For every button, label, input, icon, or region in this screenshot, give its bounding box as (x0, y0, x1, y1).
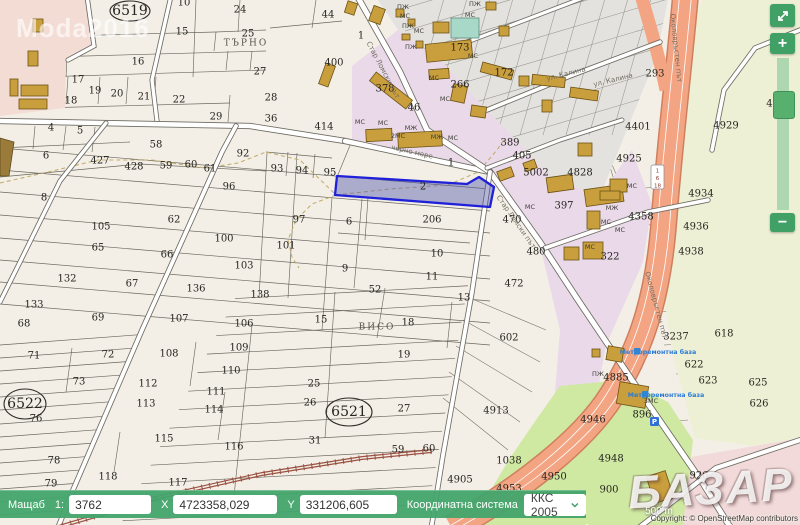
parcel-label: 61 (204, 164, 217, 175)
parcel-label: 100 (214, 234, 233, 245)
map-viewer: 1024152516271719202122182945441400283641… (0, 0, 800, 525)
parcel-label: 4950 (541, 472, 566, 483)
parcel-label: 59 (160, 161, 173, 172)
parcel-label: 108 (159, 349, 178, 360)
building (433, 22, 449, 33)
parcel-label: 626 (749, 399, 768, 410)
parcel-label: 4828 (567, 168, 592, 179)
building (600, 191, 620, 200)
parcel-label: 625 (748, 378, 767, 389)
parcel-label: 4401 (625, 122, 650, 133)
parcel-label: 52 (369, 285, 382, 296)
parcel-label: 65 (92, 243, 105, 254)
parcel-label: 622 (684, 360, 703, 371)
parcel-label: 18 (402, 318, 415, 329)
parcel-label: 109 (229, 343, 248, 354)
x-input[interactable] (173, 495, 277, 514)
building (499, 26, 509, 36)
parcel-label: 31 (309, 436, 322, 447)
parcel-label: 472 (504, 279, 523, 290)
parcel-label: 5002 (523, 168, 548, 179)
parcel-label: 17 (72, 75, 85, 86)
parcel-label: 414 (314, 122, 333, 133)
parcel-label: МС (615, 226, 626, 234)
building (28, 51, 38, 66)
parcel-label: 136 (186, 284, 205, 295)
parcel-label: 10 (431, 249, 444, 260)
parcel-label: 58 (150, 140, 163, 151)
parcel-label: 71 (28, 351, 41, 362)
parcel-label: 27 (254, 67, 267, 78)
parcel-label: 4929 (713, 121, 738, 132)
parcel-label: 6521 (331, 404, 367, 420)
crs-label: Координатна система (407, 499, 518, 511)
parcel-label: 6 (346, 217, 352, 228)
parcel-label: МС (468, 52, 479, 60)
parcel-label: 11 (426, 272, 439, 283)
poi-label: Метроремонтна база (628, 391, 705, 399)
parcel-label: 1038 (496, 456, 521, 467)
parcel-label: МС (400, 12, 411, 20)
scale-label: Мащаб (8, 499, 45, 511)
parcel-label: 66 (161, 250, 174, 261)
building (578, 143, 592, 156)
parcel-label: МС (355, 118, 366, 126)
parcel-label: 427 (90, 156, 109, 167)
parcel-label: 62 (168, 215, 181, 226)
parcel-label: 4358 (628, 212, 653, 223)
fullscreen-button[interactable] (770, 4, 795, 27)
parcel-label: 389 (500, 138, 519, 149)
parcel-label: 21 (138, 92, 151, 103)
parcel-label: ТЪРНО (224, 39, 268, 49)
parcel-label: 69 (92, 313, 105, 324)
parcel-label: 72 (102, 350, 115, 361)
parcel-label: 25 (308, 379, 321, 390)
parcel-label: 4925 (616, 154, 641, 165)
y-label: Y (287, 499, 294, 511)
parcel-label: 18 (65, 96, 78, 107)
parcel-label: 29 (210, 112, 223, 123)
parcel-label: ПЖ (397, 3, 409, 11)
parcel-label: 15 (176, 27, 189, 38)
parcel-label: 79 (45, 479, 58, 490)
building (519, 76, 529, 86)
status-bar: Мащаб 1: X Y Координатна система ККС 200… (0, 490, 586, 518)
parcel-label: 16 (132, 57, 145, 68)
parcel-label: 133 (24, 300, 43, 311)
parcel-label: 293 (645, 69, 664, 80)
route-shield-number: 6 (656, 176, 660, 182)
parcel-label: МС (465, 11, 476, 19)
parcel-label: МС (440, 95, 451, 103)
parcel-label: 322 (600, 252, 619, 263)
parcel-label: 103 (234, 261, 253, 272)
parcel-label: 115 (154, 434, 173, 445)
route-shield-number: 1 (656, 169, 660, 175)
parcel-label: 101 (276, 241, 295, 252)
parcel-label: 138 (250, 290, 269, 301)
parcel-label: 173 (450, 43, 469, 54)
parcel-label: ПЖ (402, 22, 414, 30)
parcel-label: 28 (265, 93, 278, 104)
parcel-label: 15 (315, 315, 328, 326)
parcel-label: МС (627, 182, 638, 190)
parcel-label: ПЖ (592, 370, 604, 378)
scale-input[interactable] (69, 495, 151, 514)
route-shield-number: 18 (654, 184, 661, 190)
parcel-label: 24 (234, 5, 247, 16)
building (10, 79, 18, 96)
parcel-label: МС (525, 203, 536, 211)
parcel-label: МС (378, 119, 389, 127)
parcel-label: 78 (48, 456, 61, 467)
parcel-label: 4948 (598, 454, 623, 465)
building (470, 105, 486, 118)
parcel-label: 428 (124, 162, 143, 173)
parcel-label: 6519 (112, 3, 148, 19)
parcel-label: 1 (358, 31, 364, 42)
parcel-label: 2МС (391, 132, 406, 140)
parcel-label: ПЖ (405, 43, 417, 51)
parcel-label: 4 (48, 123, 54, 134)
parcel-label: 105 (91, 222, 110, 233)
parcel-label: 19 (398, 350, 411, 361)
expand-arrows-icon (776, 9, 790, 23)
parcel-label: 4905 (447, 475, 472, 486)
parcel-label: МС (448, 134, 459, 142)
parcel-label: 113 (136, 399, 155, 410)
parcel-label: 26 (304, 398, 317, 409)
parcel-label: 114 (204, 405, 223, 416)
parcel-label: МС (414, 27, 425, 35)
parcel-label: 1 (448, 158, 454, 169)
parcel-label: 623 (698, 376, 717, 387)
poi-icon (634, 348, 641, 355)
zoom-slider-track[interactable] (777, 58, 789, 210)
parcel-label: МС (429, 74, 440, 82)
building (366, 128, 393, 141)
parcel-label: 8 (41, 193, 47, 204)
map-canvas[interactable]: 1024152516271719202122182945441400283641… (0, 0, 800, 525)
parcel-label: 132 (57, 274, 76, 285)
parcel-label: 95 (324, 168, 337, 179)
parcel-label: 107 (169, 314, 188, 325)
parcel-label: 60 (423, 444, 436, 455)
parcel-label: 68 (18, 319, 31, 330)
chevron-down-icon (571, 502, 579, 508)
parcel-label: МЖ (606, 204, 619, 212)
parcel-label: 4938 (678, 247, 703, 258)
parcel-label: МС (585, 243, 596, 251)
parcel-label: ПЖ (469, 0, 481, 8)
parcel-label: 206 (422, 215, 441, 226)
parcel-label: 60 (185, 160, 198, 171)
parcel-label: 110 (221, 366, 240, 377)
parcel-label: 112 (138, 379, 157, 390)
parcel-label: 4885 (603, 373, 628, 384)
building (402, 34, 410, 40)
parcel-label: 266 (450, 80, 469, 91)
parcel-label: 618 (714, 329, 733, 340)
parcel-label: 67 (126, 279, 139, 290)
parcel-label: 13 (458, 293, 471, 304)
parcel-label: 172 (494, 68, 513, 79)
scale-ratio-label: 1: (55, 499, 64, 511)
building (19, 99, 47, 109)
parcel-label: 46 (408, 103, 421, 114)
parcel-label: 397 (554, 201, 573, 212)
x-label: X (161, 499, 168, 511)
parcel-label: 94 (296, 166, 309, 177)
building (486, 2, 496, 10)
parcel-label: 20 (111, 89, 124, 100)
building (564, 247, 579, 260)
poi-label: Метроремонтна база (620, 348, 697, 356)
parcel-label: 6 (43, 151, 49, 162)
y-input[interactable] (300, 495, 397, 514)
parcel-label: МЖ (405, 124, 418, 132)
building (610, 179, 627, 192)
parcel-label: 27 (398, 404, 411, 415)
parcel-label: 10 (178, 0, 191, 9)
parcel-label: 4934 (688, 189, 713, 200)
parcel-label: 480 (526, 247, 545, 258)
parcel-label: 36 (265, 114, 278, 125)
zoom-in-button[interactable]: + (770, 33, 795, 54)
parcel-label: 106 (234, 319, 253, 330)
zoom-out-button[interactable]: − (770, 213, 795, 232)
building (542, 100, 552, 112)
parcel-label: 5 (77, 126, 83, 137)
crs-selected-value: ККС 2005 (531, 491, 571, 519)
parcel-label: 96 (223, 182, 236, 193)
parcel-label: 76 (30, 414, 43, 425)
parcel-label: 97 (293, 215, 306, 226)
parcel-label: 4946 (580, 415, 605, 426)
parcel-label: ВИСО (359, 323, 396, 333)
parcel-label: 117 (168, 478, 187, 489)
parcel-label: 2 (420, 182, 426, 193)
parcel-label: 896 (632, 410, 651, 421)
poi-icon (642, 391, 649, 398)
parcel-label: 400 (324, 58, 343, 69)
parcel-label: 118 (98, 472, 117, 483)
parcel-label: 22 (173, 95, 186, 106)
parcel-label: 926 (689, 471, 708, 482)
parcel-label: 19 (89, 86, 102, 97)
parcel-label: 405 (512, 151, 531, 162)
pool (451, 18, 479, 38)
parcel-label: 4913 (483, 406, 508, 417)
parcel-label: 111 (206, 387, 225, 398)
parcel-label: 900 (599, 485, 618, 496)
parcel-label: 59 (392, 445, 405, 456)
parcel-label: 9 (342, 264, 348, 275)
crs-select[interactable]: ККС 2005 (524, 494, 586, 516)
parking-icon-letter: P (652, 418, 657, 426)
parcel-label: 93 (271, 164, 284, 175)
parcel-label: 73 (73, 377, 86, 388)
parcel-label: 6522 (7, 396, 43, 412)
parcel-label: 116 (224, 442, 243, 453)
parcel-label: 92 (237, 149, 250, 160)
parcel-label: 4936 (683, 222, 708, 233)
zoom-slider-thumb[interactable] (773, 91, 795, 119)
parcel-label: 602 (499, 333, 518, 344)
building (592, 349, 600, 357)
parcel-label: МЖ (431, 133, 444, 141)
building (587, 211, 600, 229)
parcel-label: 44 (322, 10, 335, 21)
building (21, 85, 48, 96)
parcel-label: МС (601, 218, 612, 226)
building (33, 19, 43, 32)
building (416, 41, 423, 48)
